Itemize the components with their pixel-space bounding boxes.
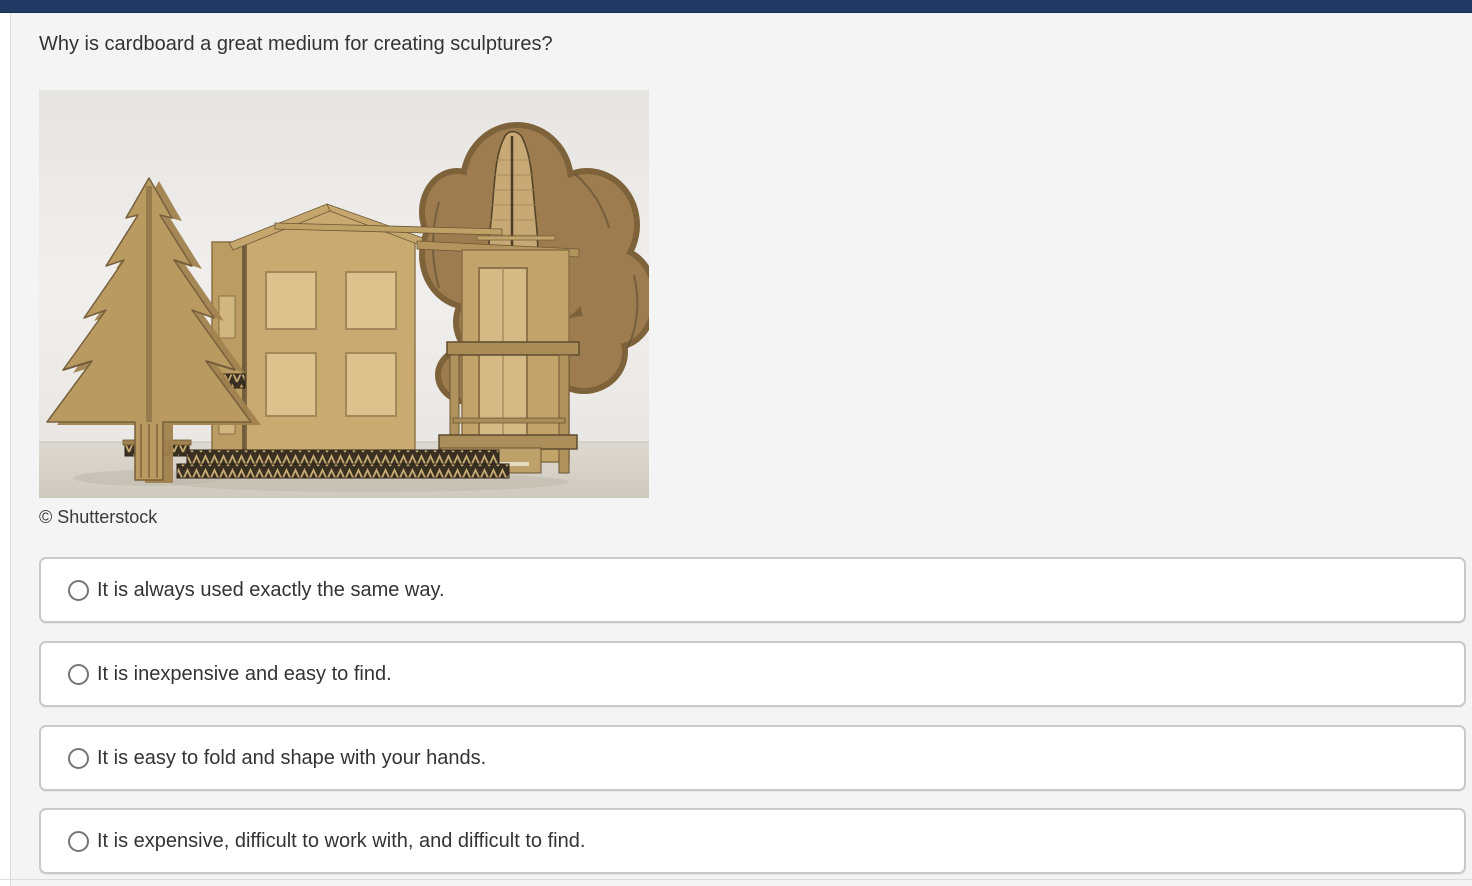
answer-option-label: It is easy to fold and shape with your h… xyxy=(97,747,486,770)
answer-option-label: It is expensive, difficult to work with,… xyxy=(97,830,585,853)
radio-button[interactable] xyxy=(68,664,89,685)
answer-option-label: It is always used exactly the same way. xyxy=(97,579,445,602)
answer-option-2[interactable]: It is inexpensive and easy to find. xyxy=(39,641,1466,707)
question-panel: Why is cardboard a great medium for crea… xyxy=(10,13,1472,886)
quiz-page: Why is cardboard a great medium for crea… xyxy=(0,0,1472,886)
radio-button[interactable] xyxy=(68,831,89,852)
answer-option-1[interactable]: It is always used exactly the same way. xyxy=(39,557,1466,623)
question-text: Why is cardboard a great medium for crea… xyxy=(39,31,553,58)
answer-option-4[interactable]: It is expensive, difficult to work with,… xyxy=(39,808,1466,874)
answer-option-3[interactable]: It is easy to fold and shape with your h… xyxy=(39,725,1466,791)
radio-button[interactable] xyxy=(68,580,89,601)
cardboard-sculpture-illustration xyxy=(39,90,649,498)
answer-option-label: It is inexpensive and easy to find. xyxy=(97,663,392,686)
question-image xyxy=(39,90,649,498)
image-credit: © Shutterstock xyxy=(39,507,157,528)
bottom-divider xyxy=(0,879,1472,880)
radio-button[interactable] xyxy=(68,748,89,769)
top-navigation-bar xyxy=(0,0,1472,13)
